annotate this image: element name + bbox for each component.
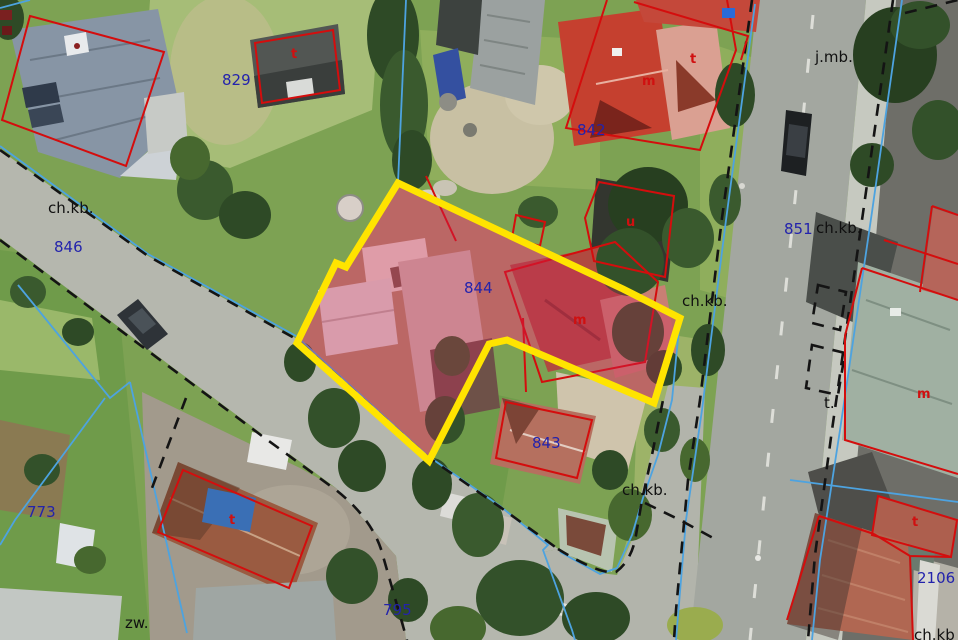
aerial-basemap: [0, 0, 958, 640]
map-symbol: [722, 8, 735, 18]
building-barn: [470, 0, 545, 105]
building-842: [558, 8, 730, 146]
map-viewport[interactable]: 8298468428448438517737952106ch.kb.j.mb.c…: [0, 0, 958, 640]
street-lamp: [755, 555, 761, 561]
